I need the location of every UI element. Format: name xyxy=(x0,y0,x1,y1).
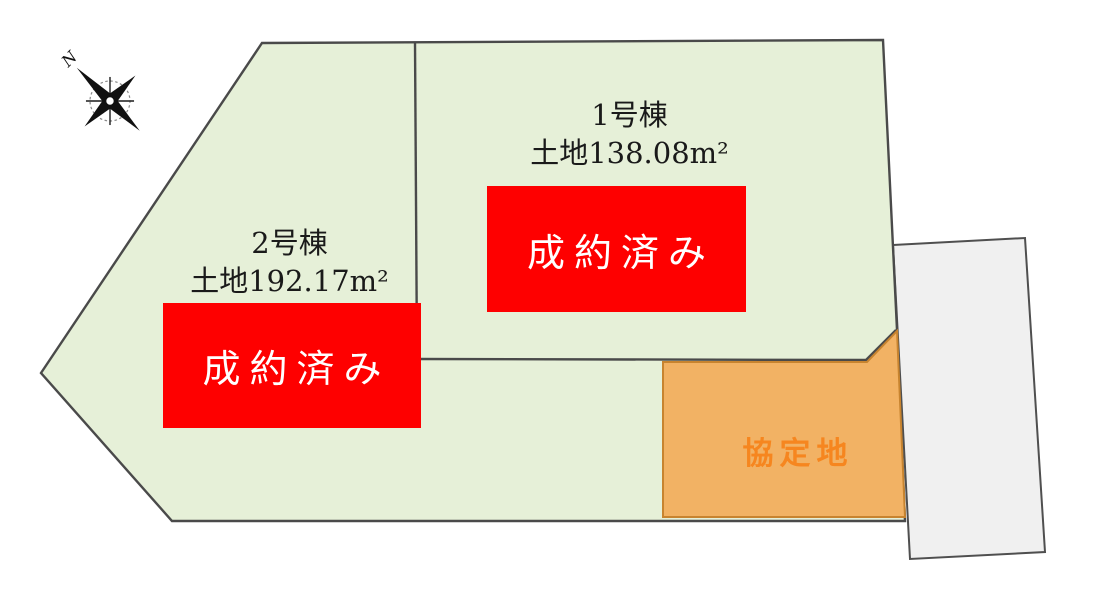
agreement-area-label: 協定地 xyxy=(695,428,895,473)
lot1-sold-banner: 成約済み xyxy=(487,186,746,312)
site-plan: N 1号棟 土地138.08m² 成約済み 2号棟 土地192.17m² 成約済… xyxy=(0,0,1096,594)
compass-north-label: N xyxy=(57,47,82,72)
lot1-name: 1号棟 xyxy=(497,96,762,134)
lot2-label: 2号棟 土地192.17m² xyxy=(157,224,422,300)
compass-icon: N xyxy=(36,27,165,156)
neighbor-parcel-shape xyxy=(893,238,1045,559)
lot2-sold-label: 成約済み xyxy=(193,338,390,393)
lot2-name: 2号棟 xyxy=(157,224,422,262)
lot2-area: 土地192.17m² xyxy=(157,262,422,300)
lot1-label: 1号棟 土地138.08m² xyxy=(497,96,762,172)
lot1-sold-label: 成約済み xyxy=(518,222,715,277)
lot1-area: 土地138.08m² xyxy=(497,134,762,172)
lot2-sold-banner: 成約済み xyxy=(163,303,421,428)
